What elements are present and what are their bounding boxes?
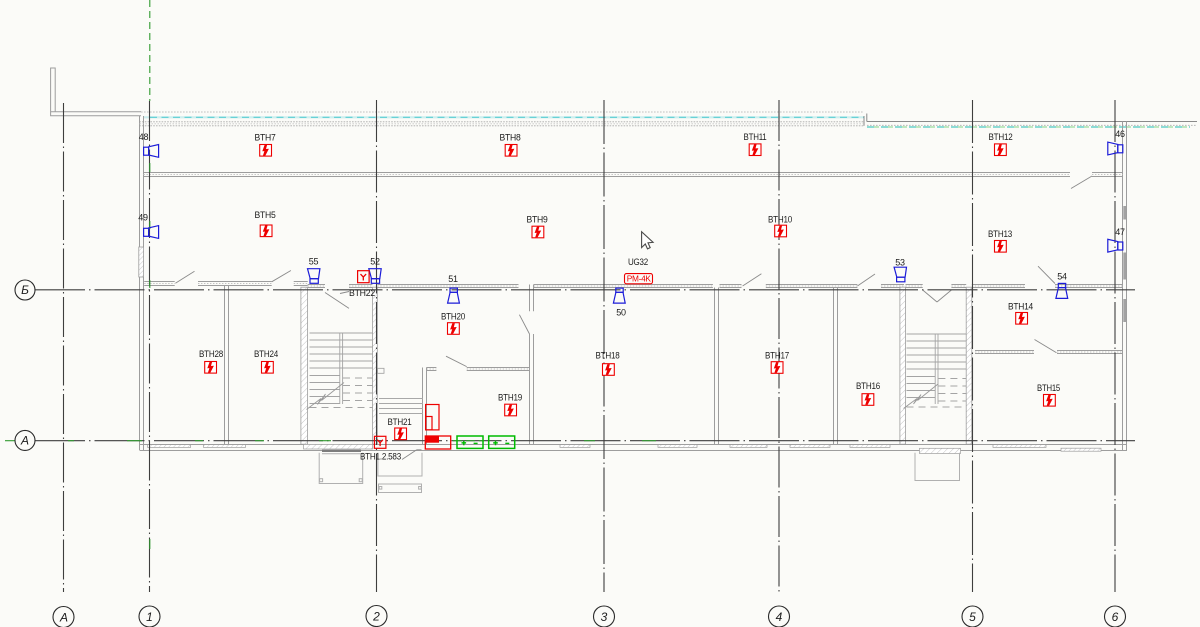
svg-text:BTH18: BTH18 bbox=[596, 350, 620, 360]
svg-text:49: 49 bbox=[138, 213, 148, 223]
svg-text:4: 4 bbox=[776, 610, 783, 624]
svg-text:Б: Б bbox=[21, 283, 29, 297]
svg-text:А: А bbox=[59, 610, 68, 624]
svg-text:BTH8: BTH8 bbox=[500, 133, 521, 143]
svg-text:53: 53 bbox=[895, 257, 905, 267]
svg-text:BTH24: BTH24 bbox=[254, 349, 278, 359]
svg-text:6: 6 bbox=[1112, 610, 1119, 624]
svg-text:BTH19: BTH19 bbox=[498, 392, 522, 402]
svg-text:BTH15: BTH15 bbox=[1037, 383, 1060, 393]
svg-text:50: 50 bbox=[616, 307, 626, 317]
svg-text:BTH1.2.583: BTH1.2.583 bbox=[360, 451, 401, 461]
svg-text:BTH16: BTH16 bbox=[856, 381, 880, 391]
svg-text:2: 2 bbox=[372, 609, 380, 623]
svg-text:1: 1 bbox=[146, 610, 153, 624]
svg-text:47: 47 bbox=[1115, 227, 1125, 237]
svg-text:BTH12: BTH12 bbox=[989, 132, 1013, 142]
svg-text:BTH17: BTH17 bbox=[765, 350, 789, 360]
svg-text:54: 54 bbox=[1057, 271, 1067, 281]
svg-text:5: 5 bbox=[969, 610, 976, 624]
svg-text:BTH11: BTH11 bbox=[744, 132, 767, 142]
svg-text:А: А bbox=[20, 434, 29, 448]
svg-text:BTH28: BTH28 bbox=[199, 349, 223, 359]
svg-text:BTH5: BTH5 bbox=[255, 210, 276, 220]
svg-text:BTH9: BTH9 bbox=[527, 214, 548, 224]
svg-text:BTH22: BTH22 bbox=[349, 288, 375, 298]
svg-text:UG32: UG32 bbox=[628, 257, 648, 267]
svg-text:BTH20: BTH20 bbox=[441, 311, 465, 321]
svg-text:BTH14: BTH14 bbox=[1008, 301, 1033, 311]
svg-text:51: 51 bbox=[448, 274, 458, 284]
svg-text:55: 55 bbox=[309, 256, 319, 266]
svg-text:48: 48 bbox=[139, 132, 149, 142]
svg-text:BTH13: BTH13 bbox=[988, 229, 1012, 239]
svg-text:3: 3 bbox=[601, 610, 608, 624]
svg-text:BTH21: BTH21 bbox=[388, 417, 412, 427]
svg-text:BTH10: BTH10 bbox=[768, 214, 792, 224]
svg-text:46: 46 bbox=[1115, 129, 1125, 139]
svg-text:PM-4K: PM-4K bbox=[627, 274, 651, 284]
svg-text:BTH7: BTH7 bbox=[255, 133, 276, 143]
svg-text:52: 52 bbox=[370, 256, 380, 266]
